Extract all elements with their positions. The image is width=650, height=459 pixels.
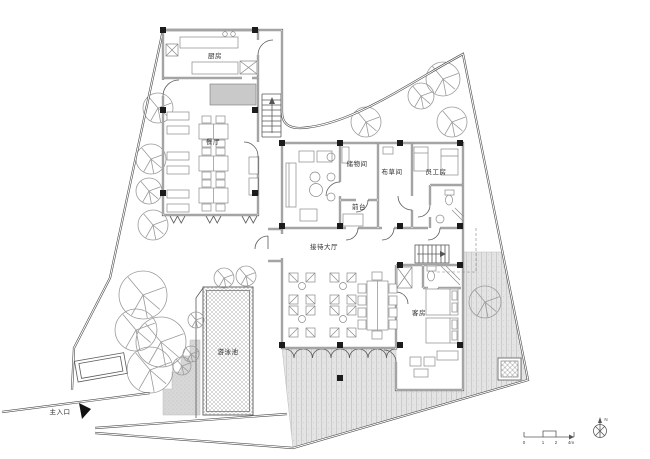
scale-tick-4m: 4m <box>568 440 575 445</box>
tree-icon <box>136 178 162 204</box>
stepped-paving <box>163 340 200 415</box>
tree-icon <box>351 107 381 137</box>
exterior-stair <box>262 94 281 137</box>
north-arrow-icon: N <box>594 417 608 438</box>
stair-arrow-icon <box>269 97 275 104</box>
tree-icon <box>426 62 460 96</box>
storage-label: 储物间 <box>347 159 368 168</box>
entrance-arrow-icon <box>79 403 91 419</box>
guest-room-furniture <box>397 266 460 377</box>
tree-icon <box>136 317 186 367</box>
reception-hall-furniture <box>289 272 397 339</box>
linen-label: 布草间 <box>382 167 403 176</box>
kitchen-furniture <box>166 32 257 105</box>
folding-door-marks <box>170 216 257 223</box>
front-desk-label: 前台 <box>352 202 366 211</box>
swimming-pool-label: 游泳池 <box>218 347 239 356</box>
seating-cluster <box>330 306 356 337</box>
jacuzzi <box>498 358 521 380</box>
scale-tick-1: 1 <box>542 440 545 445</box>
garden-bench <box>74 353 127 382</box>
entry-porch-walls <box>268 229 282 261</box>
bush-icon <box>214 268 234 288</box>
scale-arrow-icon <box>569 435 574 440</box>
bush-icon <box>236 266 256 286</box>
north-label: N <box>604 417 607 422</box>
scale-tick-0: 0 <box>523 440 526 445</box>
floor-plan-canvas: 厨房 餐厅 储物间 布草间 员工房 前台 接待大厅 客房 游泳池 主入口 0 1… <box>0 0 650 459</box>
tree-icon <box>127 347 173 393</box>
site-boundary <box>2 30 528 448</box>
scale-bar: 0 1 2 4m <box>523 431 575 445</box>
seating-cluster <box>330 273 356 304</box>
kitchen-label: 厨房 <box>208 51 222 60</box>
floor-plan-page: 厨房 餐厅 储物间 布草间 员工房 前台 接待大厅 客房 游泳池 主入口 0 1… <box>0 0 650 459</box>
dining-furniture <box>167 112 258 212</box>
seating-cluster <box>289 273 315 304</box>
tree-icon <box>136 144 166 174</box>
tree-icon <box>408 83 434 109</box>
dining-label: 餐厅 <box>206 137 220 146</box>
terrace-paving <box>282 252 528 448</box>
main-entrance-label: 主入口 <box>50 407 71 416</box>
scale-tick-2: 2 <box>555 440 558 445</box>
guest-room-label: 客房 <box>412 308 426 317</box>
staff-room-label: 员工房 <box>426 167 447 176</box>
interior-stair <box>415 245 449 263</box>
long-table <box>358 272 397 339</box>
front-desk-counter <box>343 214 363 226</box>
reception-hall-label: 接待大厅 <box>310 242 338 251</box>
tree-icon <box>437 107 467 137</box>
seating-cluster <box>289 306 315 337</box>
serving-counter <box>210 84 256 105</box>
